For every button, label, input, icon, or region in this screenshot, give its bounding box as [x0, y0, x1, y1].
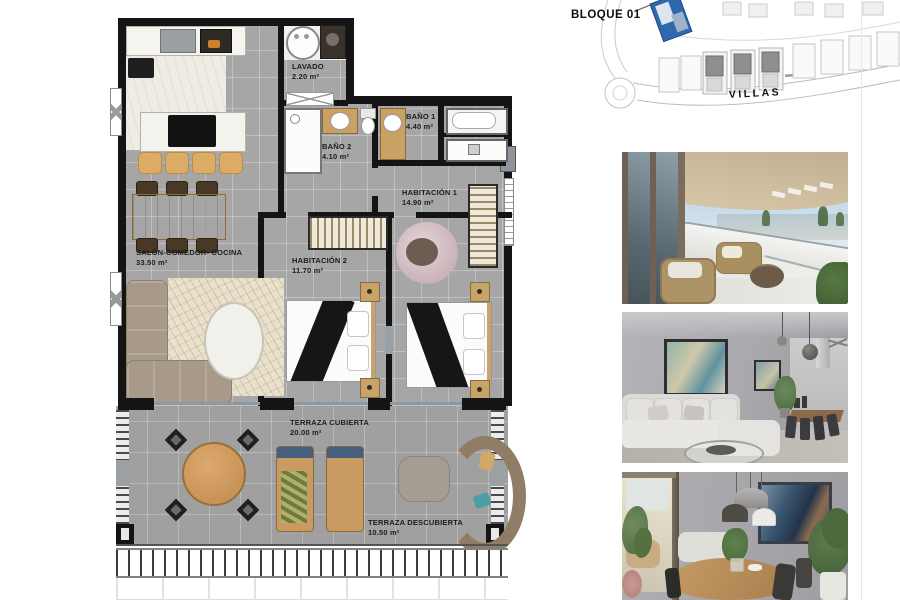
photo-terrace	[622, 152, 848, 304]
room-name: BAÑO 2	[322, 142, 352, 152]
washing-machine	[286, 26, 320, 60]
dining-table	[132, 194, 226, 240]
nightstand	[470, 380, 490, 400]
palm-tree	[818, 206, 828, 226]
room-name: BAÑO 1	[406, 112, 436, 122]
palm-tree	[836, 212, 844, 226]
pendant-dome-white	[752, 508, 776, 526]
toilet-bano2-bowl	[361, 117, 375, 135]
lavado-threshold	[286, 92, 334, 106]
pier	[260, 398, 294, 410]
villa-dark	[759, 48, 783, 90]
palm-tree	[762, 210, 770, 226]
nightstand	[360, 282, 380, 302]
sofa-cushion	[722, 246, 742, 258]
room-label-lavado: LAVADO 2.20 m²	[292, 62, 324, 82]
brochure-page: LAVADO 2.20 m² BAÑO 2 4.10 m² BAÑO 1 4.4…	[0, 0, 900, 600]
glass-vase	[730, 558, 744, 572]
bloque-01-building	[650, 0, 692, 42]
flowers	[622, 570, 642, 598]
room-area: 4.10 m²	[322, 152, 352, 162]
bathtub-inner	[452, 112, 496, 129]
chair-black-left	[664, 567, 681, 598]
terrace-round-table	[182, 442, 246, 506]
bed-pillow	[463, 313, 485, 339]
bed-hab2	[286, 300, 376, 382]
sun-lounger	[276, 446, 314, 532]
corner-post	[116, 524, 134, 544]
villas-row	[659, 32, 899, 94]
nightstand	[360, 378, 380, 398]
wardrobe-hab2	[308, 216, 388, 250]
room-label-bano2: BAÑO 2 4.10 m²	[322, 142, 352, 162]
door-frame	[622, 152, 628, 304]
photo-dining-area	[622, 472, 848, 600]
coffee-machine	[128, 58, 154, 78]
pendant-cord	[782, 312, 783, 338]
window-frame-top	[622, 472, 676, 478]
washer-knob	[304, 34, 309, 39]
neighbor-buildings-top	[723, 2, 883, 17]
wall-lavado-right	[346, 18, 354, 104]
dining-chair-dark	[796, 558, 812, 588]
window-sky	[626, 480, 668, 510]
counter-item	[802, 396, 807, 408]
bed-pillow	[463, 349, 485, 375]
table-tray	[706, 445, 736, 455]
window-left-2	[110, 272, 122, 326]
lower-structure	[116, 578, 508, 600]
room-name: TERRAZA DESCUBIERTA	[368, 518, 463, 528]
white-bowl	[748, 564, 762, 571]
room-label-salon: SALÓN-COMEDOR- COCINA 33.50 m²	[136, 248, 242, 268]
room-name: HABITACIÓN 1	[402, 188, 457, 198]
screen-post	[116, 460, 129, 486]
window-left-1	[110, 88, 122, 136]
bed-pillow	[347, 311, 369, 337]
headboard	[487, 303, 491, 387]
room-label-bano1: BAÑO 1 4.40 m²	[406, 112, 436, 132]
armchair-cushion	[668, 262, 702, 278]
wardrobe-hab1	[468, 184, 498, 268]
cooker-hood	[816, 338, 830, 368]
headboard	[371, 301, 375, 381]
door-frame	[650, 152, 656, 304]
wall-left	[118, 18, 126, 406]
cooktop	[168, 115, 216, 147]
room-label-habitacion1: HABITACIÓN 1 14.90 m²	[402, 188, 457, 208]
pendant-lamp-small	[777, 336, 787, 346]
bloque-label: BLOQUE 01	[571, 9, 641, 21]
room-area: 20.00 m²	[290, 428, 369, 438]
sink-bano1	[383, 114, 402, 132]
villa-dark	[731, 50, 755, 92]
floor-plan: LAVADO 2.20 m² BAÑO 2 4.10 m² BAÑO 1 4.4…	[110, 0, 512, 600]
shower-bano1-fixture	[468, 144, 480, 155]
sun-lounger	[326, 446, 364, 532]
room-name: LAVADO	[292, 62, 324, 72]
big-plant-leaves	[822, 508, 848, 548]
sliding-door-line	[124, 402, 506, 405]
balcony-railing	[116, 548, 508, 578]
pier	[118, 398, 154, 410]
bed-hab1	[406, 302, 492, 388]
bed-pillow	[347, 345, 369, 371]
oven	[160, 29, 196, 53]
villa-dark	[703, 52, 727, 94]
plant-pot-white	[820, 572, 846, 600]
lounger-towel	[281, 471, 307, 523]
room-name: HABITACIÓN 2	[292, 256, 347, 266]
house-plant	[774, 376, 796, 412]
photo-living-room	[622, 312, 848, 463]
pier	[462, 398, 506, 410]
room-area: 33.50 m²	[136, 258, 242, 268]
coffee-table	[204, 302, 264, 380]
room-area: 14.90 m²	[402, 198, 457, 208]
washer-knob	[294, 34, 299, 39]
pouf-table	[398, 456, 450, 502]
room-area: 11.70 m²	[292, 266, 347, 276]
pendant-dome-dark	[722, 504, 748, 522]
bed-runner	[406, 302, 470, 388]
door-hab1	[385, 326, 393, 354]
bar-stool	[138, 152, 162, 174]
wall-art-large	[664, 339, 728, 396]
villas-label: VILLAS	[729, 86, 782, 101]
room-label-habitacion2: HABITACIÓN 2 11.70 m²	[292, 256, 347, 276]
bar-stool	[192, 152, 216, 174]
ceiling-glow	[622, 312, 848, 338]
dining-chair-photo	[800, 418, 810, 440]
sink-bano2	[330, 112, 350, 130]
pendant-cord	[809, 312, 810, 346]
bed-runner	[289, 300, 354, 382]
room-label-terraza-cubierta: TERRAZA CUBIERTA 20.00 m²	[290, 418, 369, 438]
wall-top	[118, 18, 352, 26]
pendant-lamp	[802, 344, 818, 360]
room-area: 2.20 m²	[292, 72, 324, 82]
page-edge-line	[861, 0, 862, 600]
fern-plant	[816, 262, 848, 304]
site-plan: BLOQUE 01 VILLAS	[563, 0, 900, 118]
round-chair-cushion	[406, 238, 438, 266]
bar-stool	[165, 152, 189, 174]
sofa-back-cushion	[710, 398, 738, 422]
terrace-edge	[116, 544, 508, 546]
shower-head	[290, 114, 300, 124]
room-label-terraza-descubierta: TERRAZA DESCUBIERTA 10.50 m²	[368, 518, 463, 538]
room-name: TERRAZA CUBIERTA	[290, 418, 369, 428]
bar-stool	[219, 152, 243, 174]
side-table	[750, 264, 784, 288]
centerpiece-plant	[722, 528, 748, 562]
nightstand	[470, 282, 490, 302]
dryer-door	[326, 33, 339, 46]
art-canvas	[667, 342, 725, 393]
room-area: 10.50 m²	[368, 528, 463, 538]
pier	[368, 398, 390, 410]
room-area: 4.40 m²	[406, 122, 436, 132]
dining-chair-dark	[772, 563, 797, 600]
room-name: SALÓN-COMEDOR- COCINA	[136, 248, 242, 258]
microwave-glow	[208, 40, 220, 48]
